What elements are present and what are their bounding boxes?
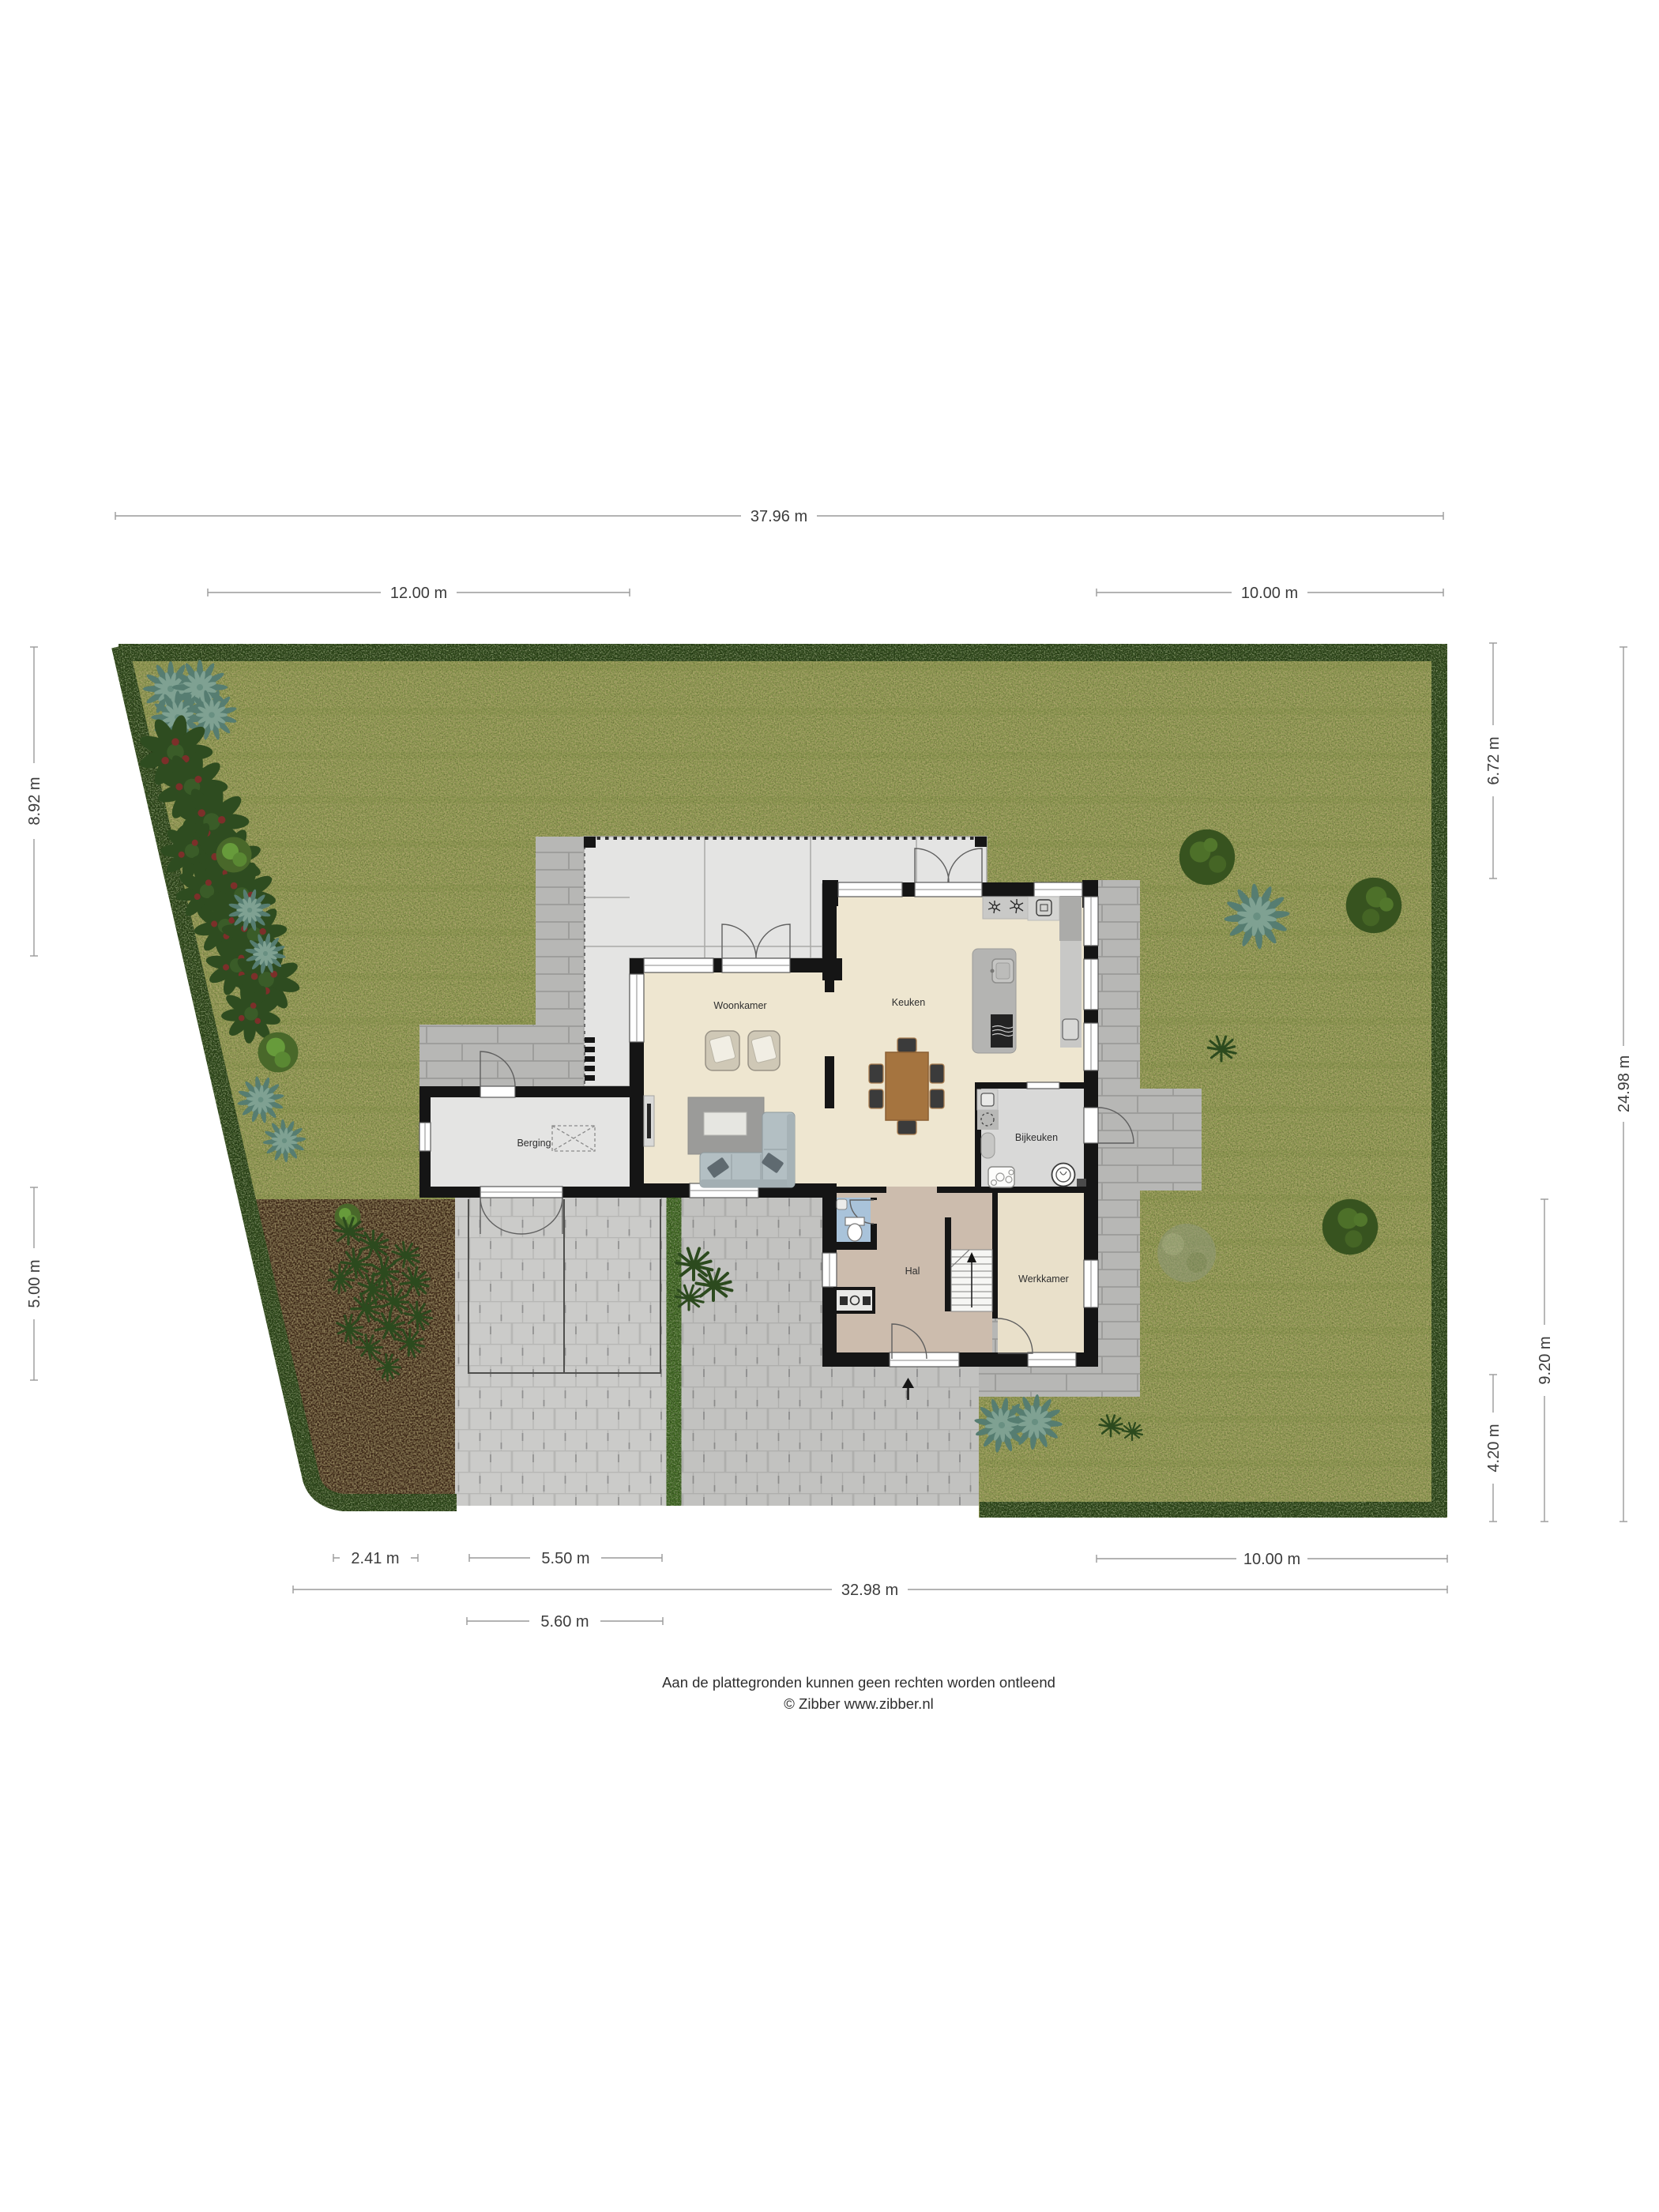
svg-text:Aan de plattegronden kunnen ge: Aan de plattegronden kunnen geen rechten… bbox=[662, 1674, 1055, 1691]
svg-text:6.72 m: 6.72 m bbox=[1485, 736, 1503, 784]
svg-text:5.00 m: 5.00 m bbox=[26, 1259, 43, 1307]
svg-text:9.20 m: 9.20 m bbox=[1537, 1336, 1554, 1384]
svg-text:Bijkeuken: Bijkeuken bbox=[1015, 1132, 1058, 1143]
svg-text:32.98 m: 32.98 m bbox=[841, 1582, 898, 1599]
svg-text:Hal: Hal bbox=[905, 1266, 920, 1277]
svg-text:Keuken: Keuken bbox=[892, 997, 925, 1008]
svg-text:Werkkamer: Werkkamer bbox=[1018, 1273, 1069, 1285]
svg-text:12.00 m: 12.00 m bbox=[390, 585, 447, 602]
svg-text:8.92 m: 8.92 m bbox=[26, 777, 43, 825]
svg-text:4.20 m: 4.20 m bbox=[1485, 1424, 1503, 1472]
svg-text:37.96 m: 37.96 m bbox=[750, 508, 807, 525]
svg-text:5.50 m: 5.50 m bbox=[541, 1550, 589, 1567]
svg-text:10.00 m: 10.00 m bbox=[1243, 1551, 1300, 1568]
svg-text:10.00 m: 10.00 m bbox=[1241, 585, 1298, 602]
svg-text:© Zibber www.zibber.nl: © Zibber www.zibber.nl bbox=[784, 1695, 933, 1712]
svg-text:Woonkamer: Woonkamer bbox=[713, 1000, 766, 1011]
svg-text:2.41 m: 2.41 m bbox=[351, 1550, 399, 1567]
svg-text:Berging: Berging bbox=[517, 1138, 551, 1149]
svg-text:5.60 m: 5.60 m bbox=[540, 1613, 589, 1631]
svg-text:24.98 m: 24.98 m bbox=[1616, 1055, 1633, 1112]
